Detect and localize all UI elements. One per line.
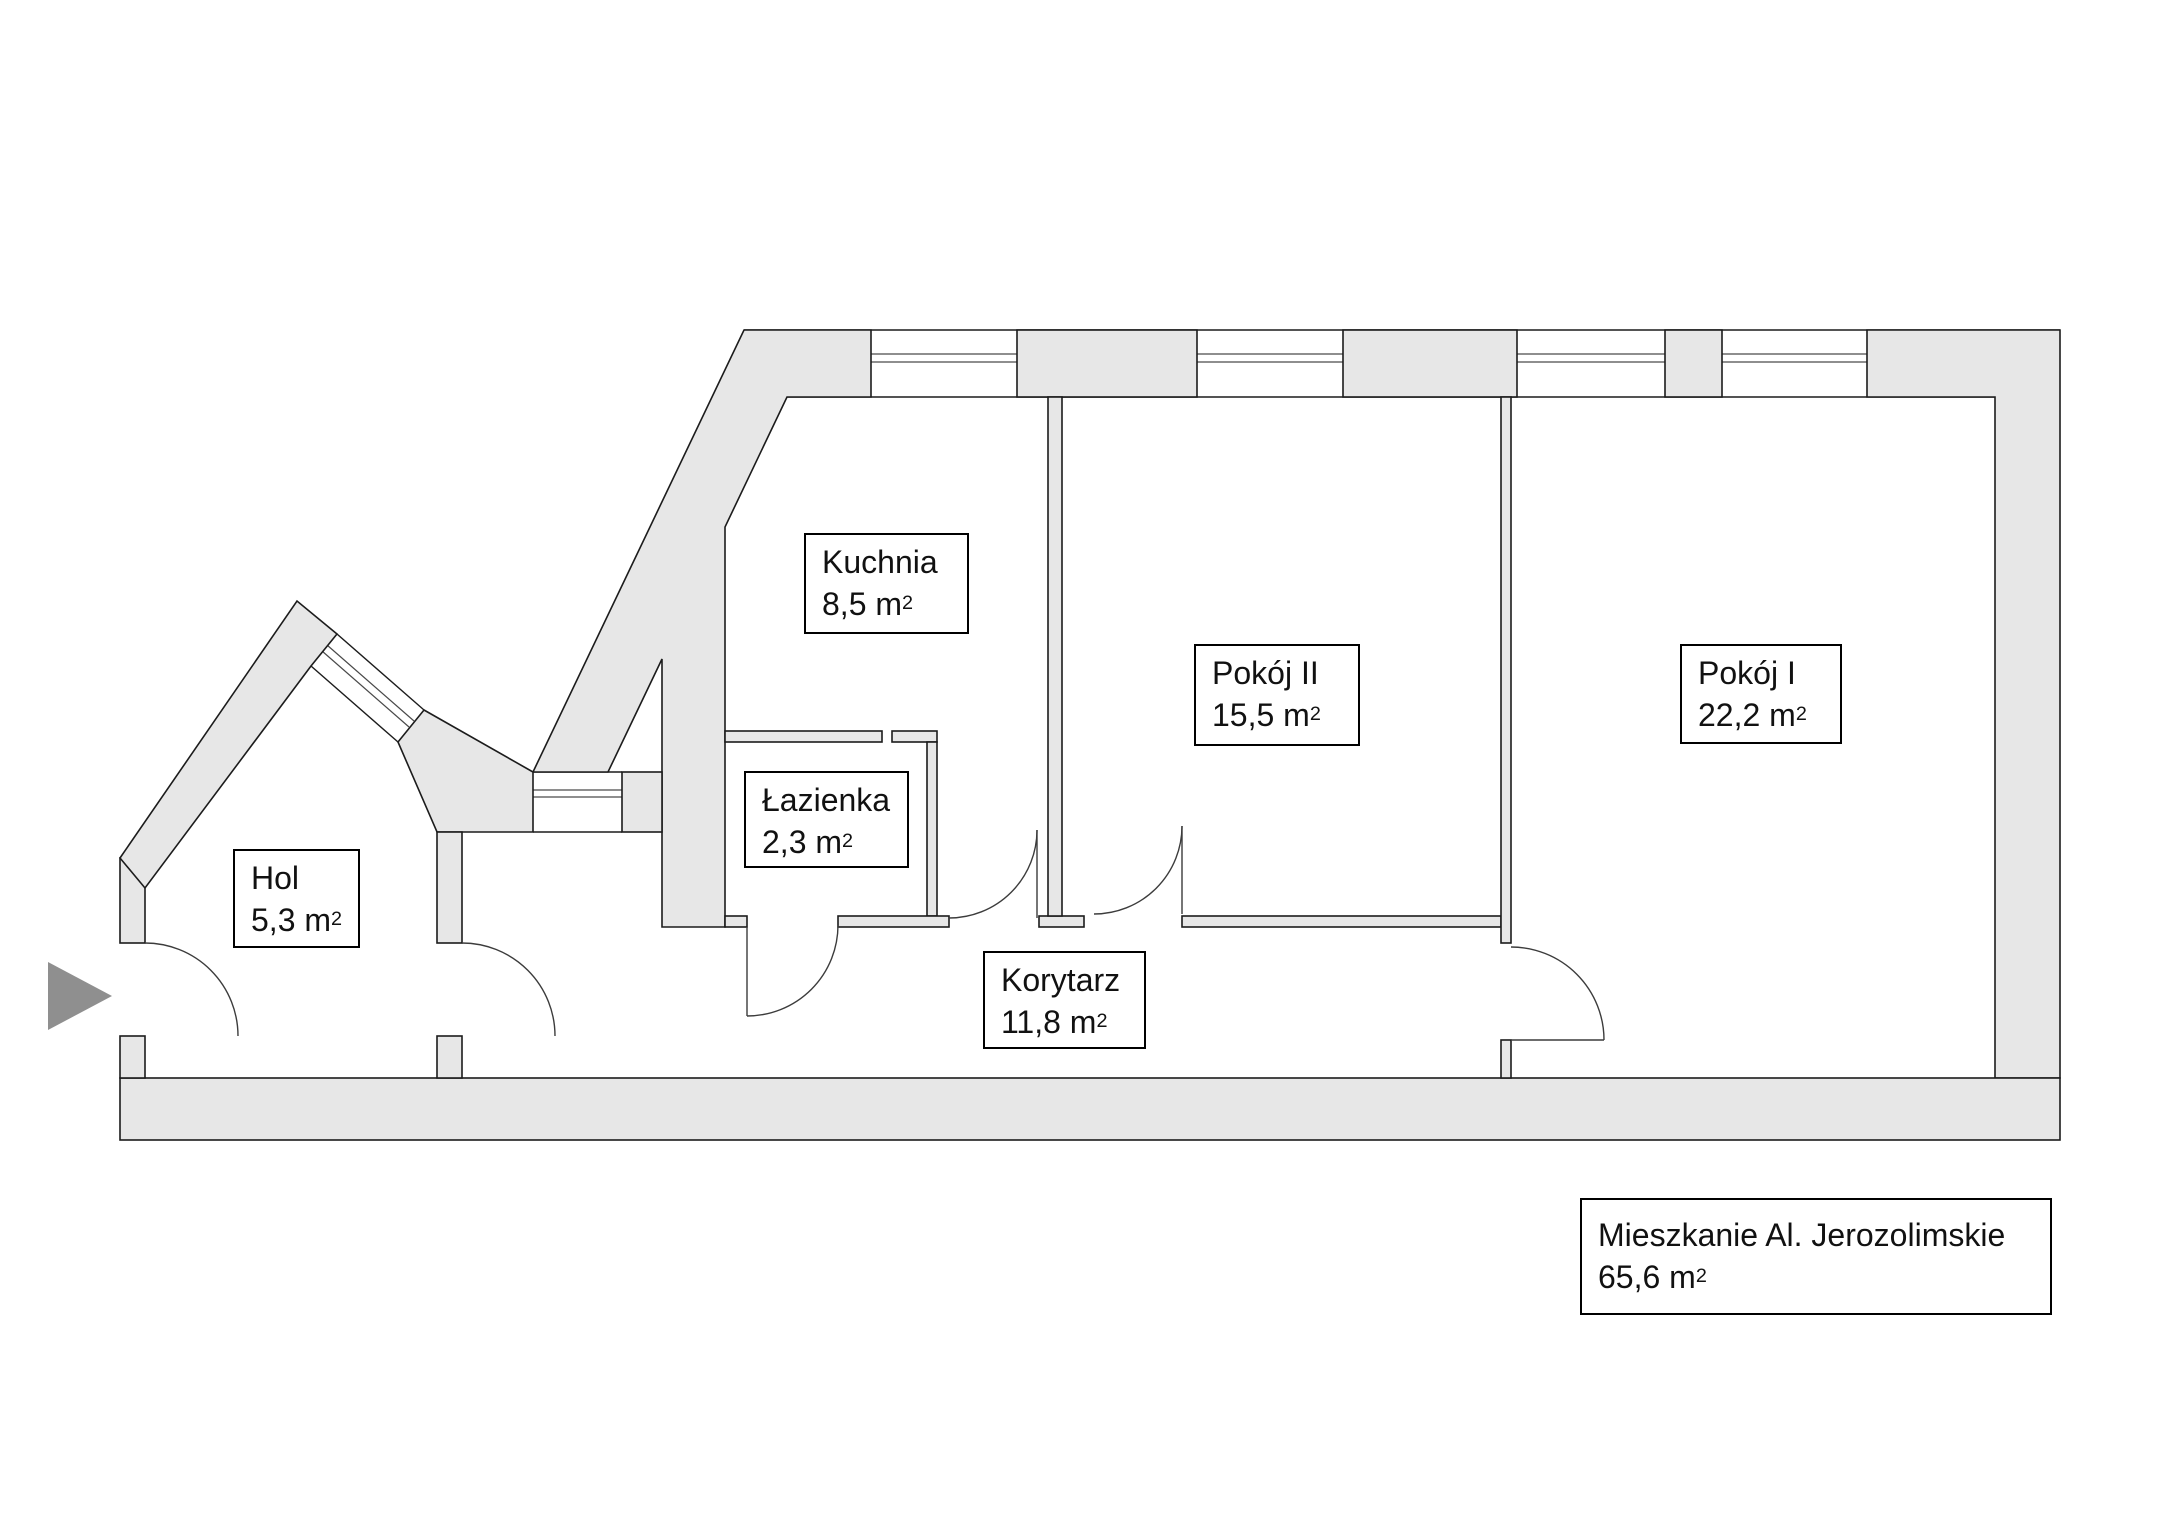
room-area: 2,3 m2 xyxy=(762,821,907,863)
room-name: Pokój II xyxy=(1212,652,1358,694)
room-label-pokoj-ii: Pokój II 15,5 m2 xyxy=(1194,644,1360,746)
room2-door-arc xyxy=(1094,826,1182,914)
room-name: Łazienka xyxy=(762,779,907,821)
room-area: 8,5 m2 xyxy=(822,583,967,625)
interior-window-pier xyxy=(622,772,662,832)
room-area: 11,8 m2 xyxy=(1001,1001,1144,1043)
floorplan-canvas: Kuchnia 8,5 m2 Pokój II 15,5 m2 Pokój I … xyxy=(0,0,2172,1536)
bathroom-top-wall xyxy=(892,731,937,742)
corridor-north-wall xyxy=(725,916,747,927)
room-name: Kuchnia xyxy=(822,541,967,583)
room1-door-stub xyxy=(1501,1040,1511,1078)
entrance-door-arc xyxy=(145,943,238,1036)
apartment-title: Mieszkanie Al. Jerozolimskie xyxy=(1598,1214,2050,1256)
hall-diagonal-window xyxy=(311,634,424,742)
hall-corner-block xyxy=(398,710,533,832)
room-area: 5,3 m2 xyxy=(251,899,358,941)
hall-door-arc xyxy=(462,943,555,1036)
apartment-area: 65,6 m2 xyxy=(1598,1256,2050,1298)
bathroom-door-arc xyxy=(747,925,838,1016)
room2-west-wall xyxy=(1048,397,1062,916)
room-name: Pokój I xyxy=(1698,652,1840,694)
bathroom-right-wall xyxy=(927,742,937,916)
hall-corridor-wall xyxy=(437,832,462,943)
bathroom-top-wall xyxy=(725,731,882,742)
room-label-lazienka: Łazienka 2,3 m2 xyxy=(744,771,909,868)
entrance-arrow-icon xyxy=(48,962,112,1030)
kitchen-door-arc xyxy=(949,830,1037,918)
room-label-pokoj-i: Pokój I 22,2 m2 xyxy=(1680,644,1842,744)
hall-diagonal-wall xyxy=(120,601,337,888)
hall-interior-window xyxy=(533,772,622,832)
room-label-hol: Hol 5,3 m2 xyxy=(233,849,360,948)
corridor-north-wall xyxy=(838,916,949,927)
corridor-north-wall xyxy=(1182,916,1501,927)
room-name: Korytarz xyxy=(1001,959,1144,1001)
hall-door-stub xyxy=(437,1036,462,1078)
room2-room1-wall xyxy=(1501,397,1511,943)
room-label-kuchnia: Kuchnia 8,5 m2 xyxy=(804,533,969,634)
room-area: 22,2 m2 xyxy=(1698,694,1840,736)
top-wall-pier xyxy=(1017,330,1197,397)
top-wall-pier xyxy=(1343,330,1517,397)
room-label-korytarz: Korytarz 11,8 m2 xyxy=(983,951,1146,1049)
entrance-door-stub xyxy=(120,1036,145,1078)
top-wall-pier xyxy=(1665,330,1722,397)
room1-door-arc xyxy=(1511,947,1604,1040)
apartment-title-box: Mieszkanie Al. Jerozolimskie 65,6 m2 xyxy=(1580,1198,2052,1315)
bottom-exterior-wall xyxy=(120,1078,2060,1140)
room-area: 15,5 m2 xyxy=(1212,694,1358,736)
room-name: Hol xyxy=(251,857,358,899)
corridor-north-wall xyxy=(1039,916,1084,927)
right-exterior-wall xyxy=(1867,330,2060,1078)
